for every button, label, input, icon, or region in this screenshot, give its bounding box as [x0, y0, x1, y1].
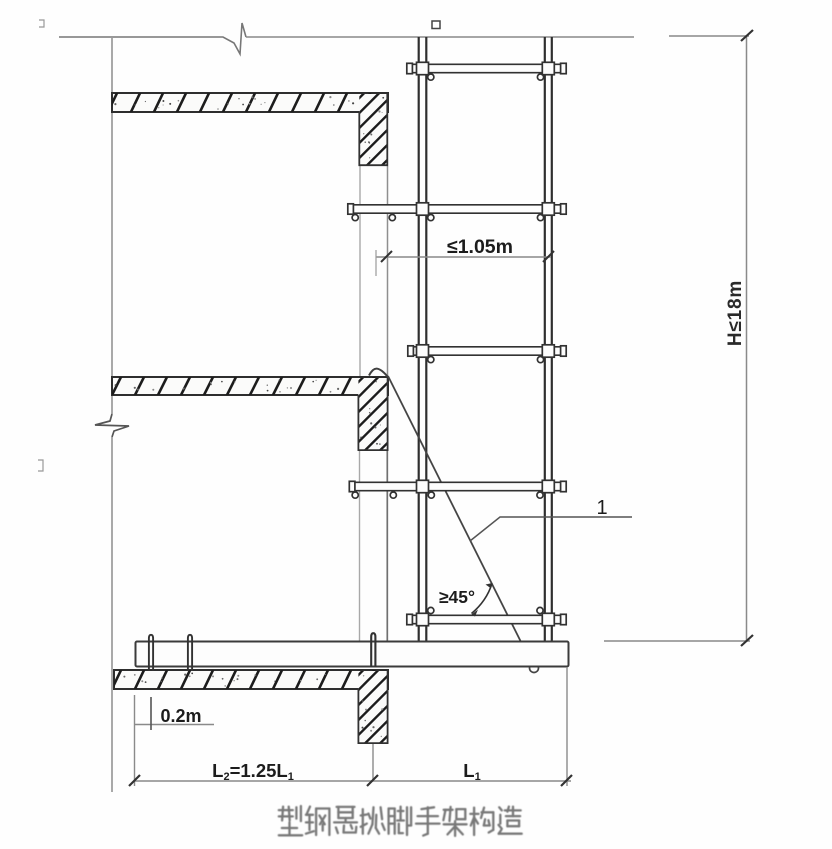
svg-text:0.2m: 0.2m — [160, 706, 201, 726]
svg-text:≥45°: ≥45° — [439, 587, 475, 607]
svg-text:≤1.05m: ≤1.05m — [447, 236, 513, 258]
svg-text:1: 1 — [596, 497, 607, 519]
svg-text:H≤18m: H≤18m — [725, 280, 746, 346]
